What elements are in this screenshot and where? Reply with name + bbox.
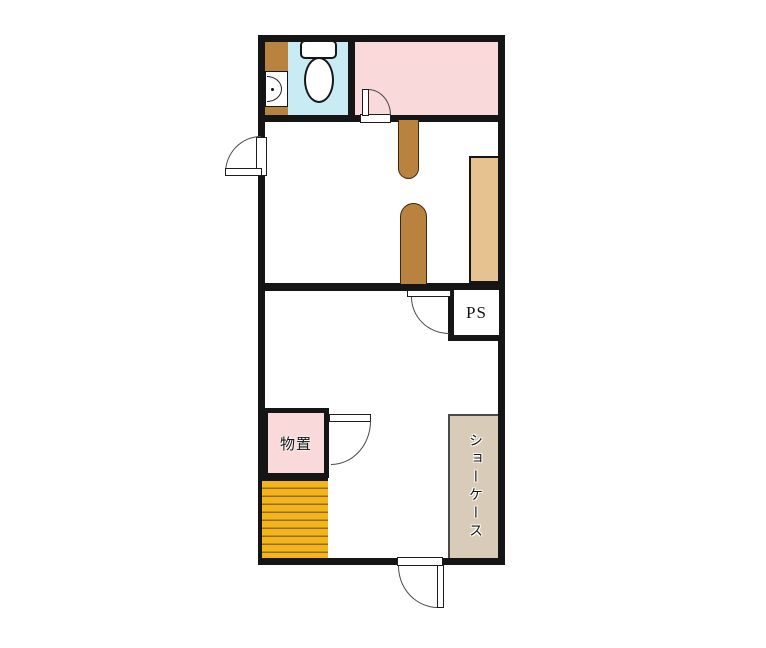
left-door-leaf: [225, 168, 262, 176]
entrance-door-leaf: [437, 565, 444, 608]
washbasin-drain-icon: [271, 88, 274, 91]
showcase-label: ショーケース: [464, 433, 484, 541]
entrance-door-swing-arc: [398, 566, 438, 608]
showcase-box: ショーケース: [448, 414, 498, 558]
storage-label: 物置: [280, 433, 312, 454]
toilet-room-divider-wall: [348, 42, 355, 115]
middle-door-swing-arc: [411, 297, 449, 334]
outer-wall-top: [258, 35, 505, 42]
outer-wall-bottom: [258, 558, 505, 565]
pipe-space-box: PS: [448, 284, 505, 341]
pipe-space-label: PS: [466, 303, 487, 323]
counter-icon: [469, 156, 498, 283]
upper-room-door-leaf: [362, 89, 369, 116]
staircase-icon: [262, 477, 328, 558]
partition-column-bottom: [400, 203, 427, 284]
toilet-bowl-icon: [304, 57, 334, 103]
floor-plan: PS 物置 ショーケース: [0, 0, 766, 648]
partition-column-top: [398, 120, 419, 179]
storage-room: 物置: [263, 408, 329, 478]
middle-door-opening: [407, 290, 451, 297]
storage-door-swing-arc: [331, 421, 371, 465]
